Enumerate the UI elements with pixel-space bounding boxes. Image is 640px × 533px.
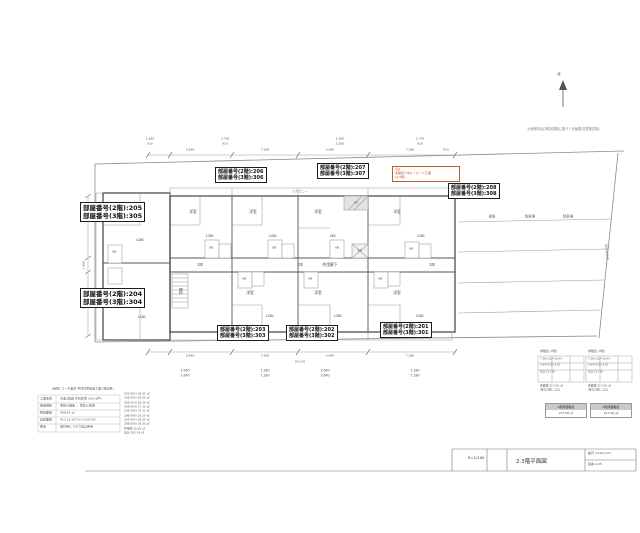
interior-partitions bbox=[103, 193, 400, 340]
room-number-label-208: 部屋番号(2階):208 部屋番号(3階):308 bbox=[448, 183, 500, 199]
annotation: 3,640 bbox=[326, 355, 335, 358]
annotation: LDK bbox=[266, 314, 274, 318]
annotation: 玄関 bbox=[429, 264, 435, 267]
annotation: 998.45 ㎡ bbox=[60, 412, 74, 415]
annotation: 延床面積 bbox=[40, 419, 52, 422]
annotation: 洋室 bbox=[249, 210, 257, 214]
annotation: 2,730 bbox=[416, 138, 425, 141]
annotation: 3,640 bbox=[320, 369, 329, 372]
annotation: 工事名称 bbox=[40, 398, 52, 401]
annotation: LDK bbox=[334, 314, 342, 318]
room-number-label-202: 部屋番号(2階):202 部屋番号(3階):302 bbox=[286, 325, 338, 341]
annotation: 準耐火構造 ・ 準防火地域 bbox=[60, 405, 95, 408]
annotation: UB bbox=[308, 278, 312, 281]
title-block-right-1: 縮尺 1/100 (A3) bbox=[588, 451, 611, 455]
north-label: 北 bbox=[557, 72, 561, 77]
annotation: 7,280 bbox=[406, 149, 415, 152]
annotation: LDK bbox=[206, 234, 214, 238]
annotation: 3.64×1.82 6.62 bbox=[588, 365, 608, 368]
annotation: 敷地面積 bbox=[40, 412, 52, 415]
annotation: UB bbox=[409, 248, 413, 251]
title-block-scale: S=1/100 bbox=[468, 455, 485, 460]
annotation: 7.28×3.64 26.49 bbox=[588, 359, 610, 362]
annotation: 202(302) 26.50 ㎡ bbox=[124, 397, 149, 400]
title-block-rules bbox=[85, 449, 636, 471]
annotation: 床面積 217.00 ㎡ bbox=[540, 385, 563, 388]
annotation: 3,640 bbox=[320, 374, 329, 377]
annotation: (仮称) コーポ金沢 共同住宅新築工事 (検討用) bbox=[52, 388, 114, 391]
annotation: LDK bbox=[136, 238, 144, 242]
annotation: 木造2階建 共同住宅 (1R×8戸) bbox=[60, 398, 102, 401]
annotation: DK bbox=[330, 234, 335, 238]
room-number-label-205: 部屋番号(2階):205 部屋番号(3階):305 bbox=[80, 202, 145, 222]
room-number-label-207: 部屋番号(2階):207 部屋番号(3階):307 bbox=[317, 163, 369, 179]
annotation: 7.28×3.64 26.49 bbox=[540, 359, 562, 362]
annotation: 1,820 bbox=[336, 143, 345, 146]
annotation: LDK bbox=[417, 234, 425, 238]
annotation: 7,280 bbox=[260, 374, 269, 377]
room-number-label-206: 部屋番号(2階):206 部屋番号(3階):306 bbox=[215, 167, 267, 183]
annotation: 洋室 bbox=[189, 210, 197, 214]
annotation: (壁芯計算による) bbox=[540, 390, 560, 393]
unit-walls bbox=[103, 196, 455, 332]
annotation: 208(308) 28.35 ㎡ bbox=[124, 423, 149, 426]
annotation: 駐車場 bbox=[563, 215, 573, 218]
annotation: 1,820 bbox=[146, 138, 155, 141]
annotation: EV bbox=[358, 249, 362, 252]
annotation: 玄関 bbox=[197, 264, 203, 267]
legend-title-2f: 求積表 (2階) bbox=[540, 349, 557, 353]
drawing-linework bbox=[0, 0, 640, 533]
annotation: 合計 217.00 bbox=[540, 372, 555, 375]
north-arrow-icon bbox=[559, 80, 567, 107]
annotation: UB bbox=[242, 278, 246, 281]
parking-lines bbox=[458, 219, 612, 313]
annotation: LDK bbox=[138, 315, 146, 319]
annotation: 洋室 bbox=[246, 291, 254, 295]
annotation: LDK bbox=[416, 314, 424, 318]
annotation: 3,640 bbox=[186, 355, 195, 358]
annotation: PS bbox=[354, 202, 357, 205]
annotation: 412.16 ㎡ (S=1:100 A3) bbox=[60, 419, 96, 422]
annotation: 3.64×1.82 6.62 bbox=[540, 365, 560, 368]
sheet-note: 土地資料及び現況調査に基づく計画図(意匠検討用) bbox=[527, 126, 600, 131]
room-number-label-201: 部屋番号(2階):201 部屋番号(3階):301 bbox=[380, 322, 432, 338]
annotation: 205(305) 27.12 ㎡ bbox=[124, 410, 149, 413]
annotation: 合計 235.14 ㎡ bbox=[124, 432, 144, 435]
floor-area-box-2f: 2階床面積表 217.00 ㎡ bbox=[545, 403, 587, 418]
annotation: UB bbox=[112, 251, 116, 254]
room-number-label-203: 部屋番号(2階):203 部屋番号(3階):303 bbox=[217, 325, 269, 341]
floor-area-box-3f: 3階床面積表 217.00 ㎡ bbox=[590, 403, 632, 418]
sheet-title: 2.3階平面図 bbox=[516, 457, 547, 465]
annotation: 3,640 bbox=[180, 369, 189, 372]
annotation: 7,280 bbox=[406, 355, 415, 358]
highlight-note: (注) 太陽光パネル・ルーフ工事 (2,3階) bbox=[392, 166, 460, 182]
annotation: 床面積 217.00 ㎡ bbox=[588, 385, 611, 388]
annotation: 洋室 bbox=[314, 210, 322, 214]
annotation: 構造規模 bbox=[40, 405, 52, 408]
annotation: 駐車場 bbox=[525, 215, 535, 218]
legend-title-3f: 求積表 (3階) bbox=[588, 349, 605, 353]
annotation: バルコニー bbox=[292, 190, 308, 193]
annotation: (壁芯計算による) bbox=[588, 390, 608, 393]
annotation: 備考 bbox=[40, 426, 46, 429]
annotation: 910 bbox=[417, 143, 423, 146]
annotation: 合計 217.00 bbox=[588, 372, 603, 375]
annotation: 共用廊下 bbox=[322, 263, 337, 267]
annotation: UB bbox=[378, 278, 382, 281]
annotation: 隣地境界線 bbox=[604, 244, 609, 260]
annotation: 3,640 bbox=[180, 374, 189, 377]
annotation: 3,640 bbox=[326, 149, 335, 152]
title-block-right-2: 図番 A-05 bbox=[588, 462, 602, 466]
annotation: 検討用につき寸法は参考 bbox=[60, 426, 93, 429]
annotation: 洋室 bbox=[393, 210, 401, 214]
annotation: 1,820 bbox=[83, 261, 86, 270]
annotation: UB bbox=[209, 247, 213, 250]
annotation: 7,280 bbox=[261, 355, 270, 358]
floorplan-sheet: 北 土地資料及び現況調査に基づく計画図(意匠検討用) 部屋番号(2階):206 … bbox=[0, 0, 640, 533]
annotation: 7,280 bbox=[261, 149, 270, 152]
annotation: 29,120 bbox=[295, 361, 306, 364]
room-number-label-204: 部屋番号(2階):204 部屋番号(3階):304 bbox=[80, 288, 145, 308]
annotation: 3,640 bbox=[186, 149, 195, 152]
annotation: 7,280 bbox=[410, 374, 419, 377]
annotation: 車路 bbox=[489, 215, 496, 218]
annotation: LDK bbox=[269, 234, 277, 238]
annotation: 910 bbox=[147, 143, 153, 146]
annotation: 7,280 bbox=[410, 369, 419, 372]
annotation: 玄関 bbox=[297, 264, 303, 267]
annotation: 910 bbox=[222, 143, 228, 146]
service-rooms bbox=[108, 240, 431, 288]
annotation: 階段 bbox=[178, 288, 181, 294]
annotation: 2,730 bbox=[221, 138, 230, 141]
annotation: 7,280 bbox=[260, 369, 269, 372]
annotation: 1,820 bbox=[336, 138, 345, 141]
annotation: 910 bbox=[443, 149, 449, 152]
annotation: 洋室 bbox=[393, 291, 401, 295]
annotation: UB bbox=[272, 247, 276, 250]
annotation: UB bbox=[335, 247, 339, 250]
annotation: 洋室 bbox=[314, 291, 322, 295]
building-outline bbox=[103, 193, 455, 340]
